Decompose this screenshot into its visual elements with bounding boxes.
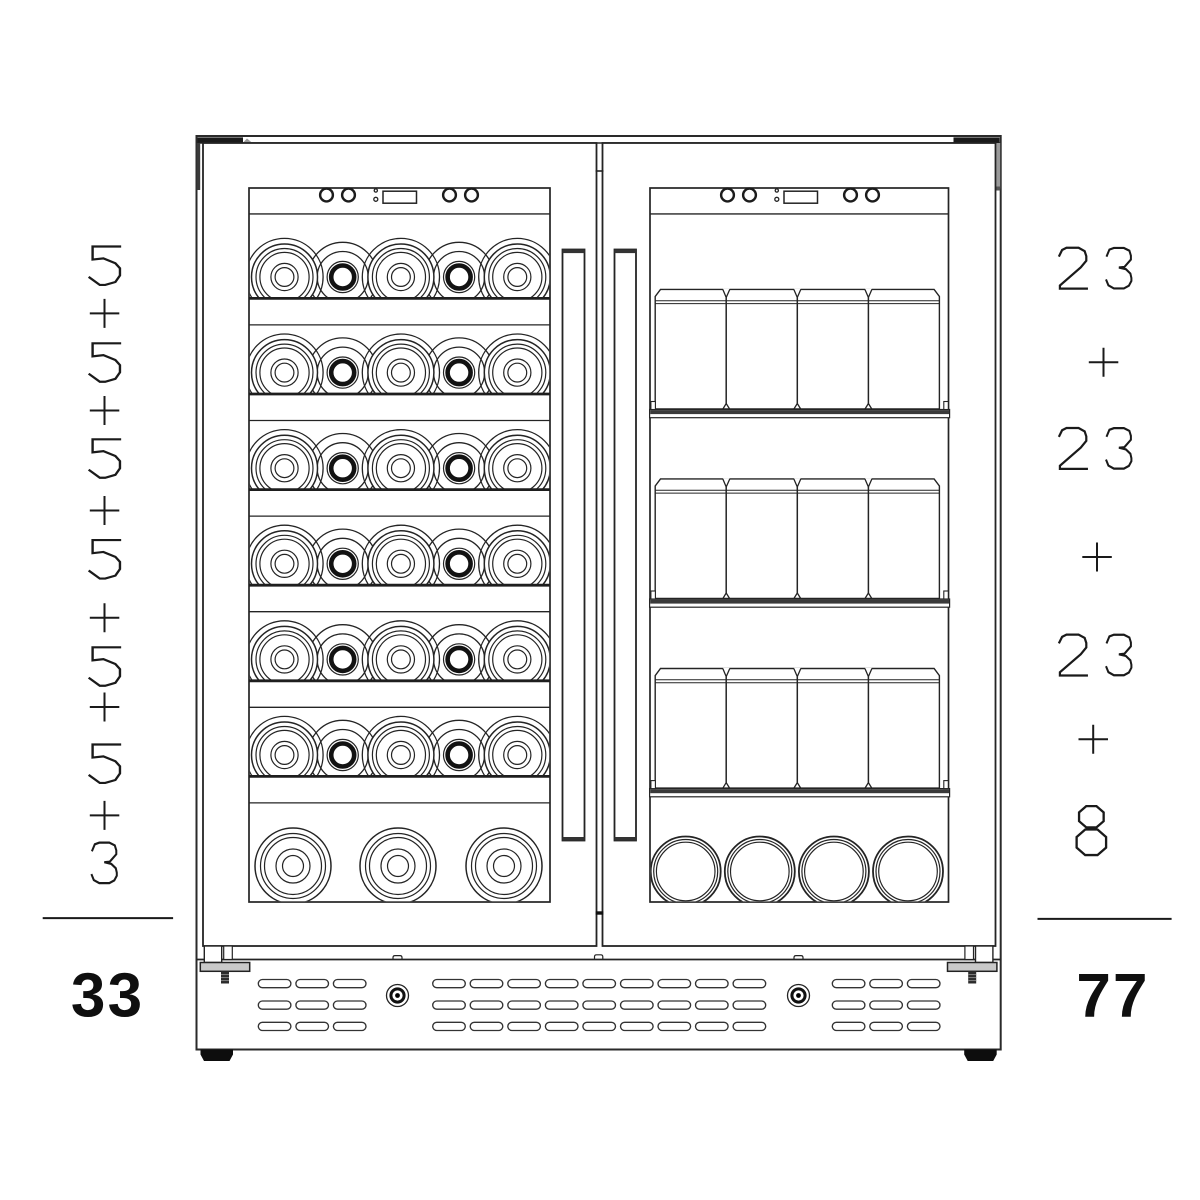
svg-text:77: 77 [1076,962,1149,1031]
svg-text:33: 33 [71,962,144,1031]
